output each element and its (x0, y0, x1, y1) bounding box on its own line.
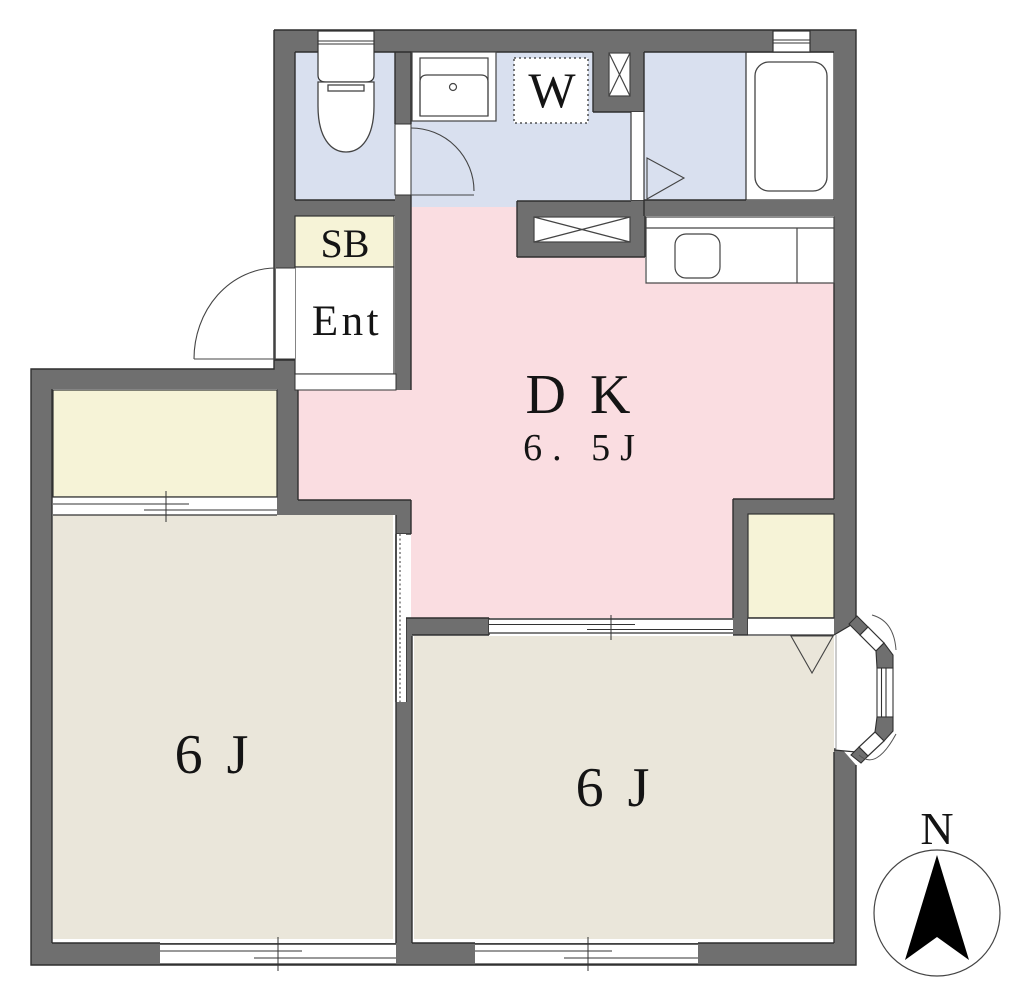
svg-text:6 J: 6 J (576, 757, 655, 819)
svg-text:6 J: 6 J (175, 724, 254, 786)
svg-text:N: N (920, 803, 953, 854)
svg-text:6. 5J: 6. 5J (523, 427, 645, 469)
svg-text:SB: SB (321, 221, 370, 266)
svg-text:DK: DK (526, 364, 655, 426)
svg-text:Ent: Ent (312, 298, 382, 345)
svg-text:W: W (528, 62, 576, 118)
